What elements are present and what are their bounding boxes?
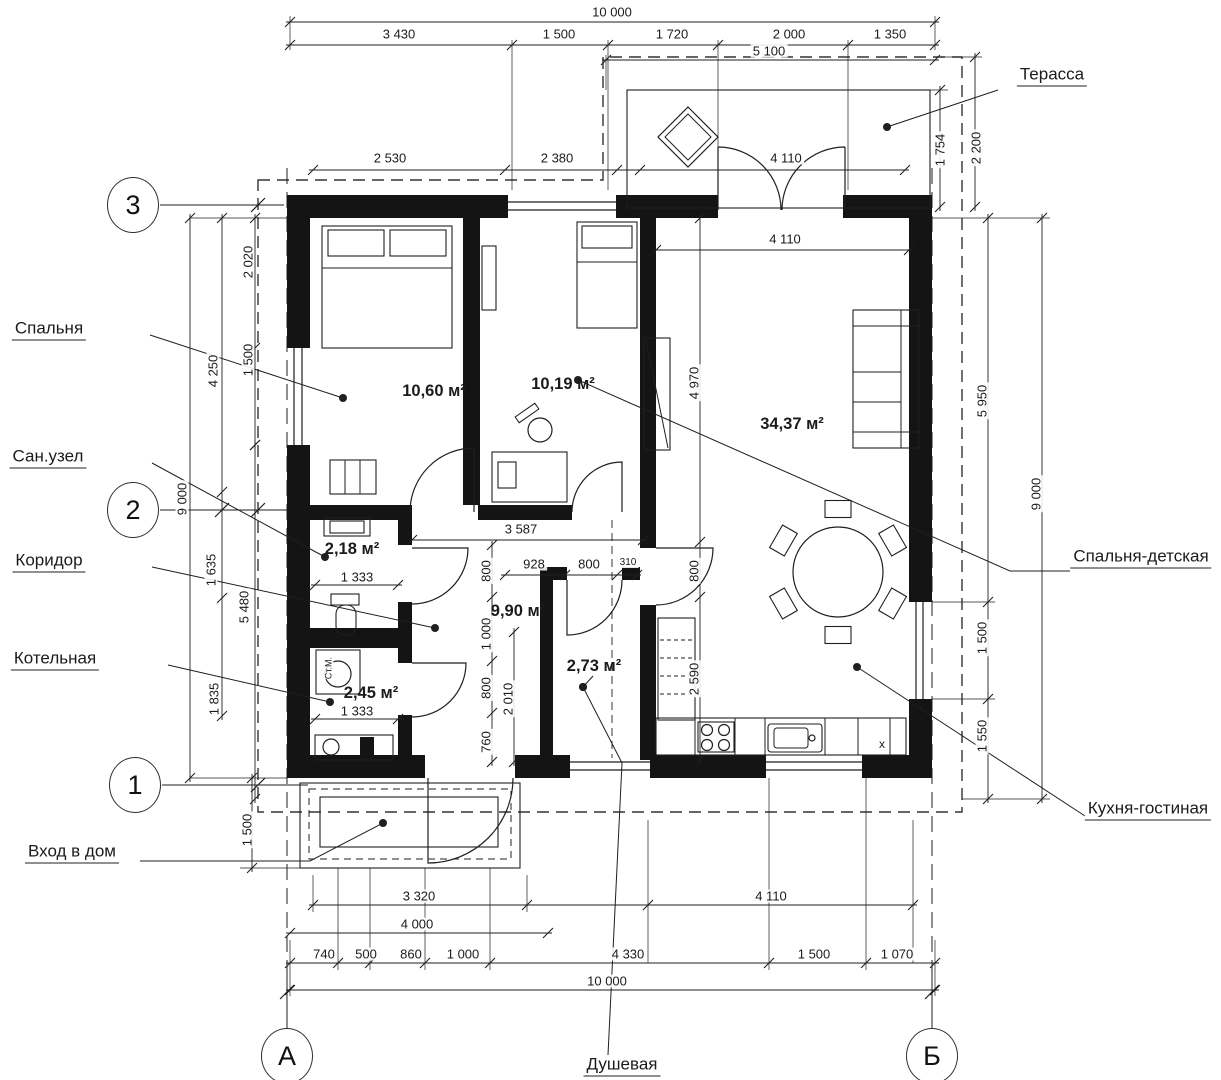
label-terrace: Терасса bbox=[1017, 66, 1087, 87]
room-area-kitchen-living: 34,37 м² bbox=[760, 416, 824, 433]
dim-1-000: 1 000 bbox=[445, 948, 482, 961]
dim-5-100: 5 100 bbox=[751, 45, 788, 58]
dim-1-835: 1 835 bbox=[208, 681, 221, 718]
room-area-boiler: 2,45 м² bbox=[344, 685, 398, 702]
label-corridor: Коридор bbox=[12, 552, 85, 573]
dim-860: 860 bbox=[398, 948, 424, 961]
label-bedroom-kids: Спальня-детская bbox=[1070, 548, 1211, 569]
room-area-corridor: 9,90 м² bbox=[491, 603, 545, 620]
label-entrance: Вход в дом bbox=[25, 843, 119, 864]
label-san-uzel: Сан.узел bbox=[10, 448, 87, 469]
dim-4-970: 4 970 bbox=[688, 365, 701, 402]
dim-5-950: 5 950 bbox=[976, 383, 989, 420]
dim-1-000: 1 000 bbox=[480, 616, 493, 653]
axis-2: 2 bbox=[107, 482, 159, 538]
dim-10-000: 10 000 bbox=[585, 975, 629, 988]
dim-2-200: 2 200 bbox=[970, 130, 983, 167]
dim-4-110: 4 110 bbox=[768, 152, 804, 165]
dim-500: 500 bbox=[353, 948, 379, 961]
text-labels-layer: 10 0003 4301 5001 7202 0001 3505 1002 53… bbox=[0, 0, 1221, 1080]
dim-1-754: 1 754 bbox=[934, 132, 947, 169]
dim-800: 800 bbox=[576, 558, 602, 571]
axis-1: 1 bbox=[109, 757, 161, 813]
floor-plan-canvas: 10 0003 4301 5001 7202 0001 3505 1002 53… bbox=[0, 0, 1221, 1080]
room-area-bedroom: 10,60 м² bbox=[402, 383, 466, 400]
dim-1-333: 1 333 bbox=[339, 705, 376, 718]
dim-4-110: 4 110 bbox=[767, 233, 803, 246]
dim-10-000: 10 000 bbox=[590, 6, 634, 19]
label-kitchen-living: Кухня-гостиная bbox=[1085, 800, 1211, 821]
dim-928: 928 bbox=[521, 558, 547, 571]
dim-800: 800 bbox=[688, 558, 701, 584]
axis-a: А bbox=[261, 1028, 313, 1080]
label-shower: Душевая bbox=[584, 1056, 661, 1077]
dim-2-590: 2 590 bbox=[688, 661, 701, 698]
dim-1-500: 1 500 bbox=[796, 948, 833, 961]
label-boiler-room: Котельная bbox=[11, 650, 99, 671]
dim-1-500: 1 500 bbox=[241, 812, 254, 849]
dim-1-333: 1 333 bbox=[339, 571, 376, 584]
axis-3: 3 bbox=[107, 177, 159, 233]
cooker-hood-symbol: x bbox=[879, 738, 885, 750]
dim-4-110: 4 110 bbox=[753, 890, 789, 903]
dim-4-000: 4 000 bbox=[399, 918, 436, 931]
dim-1-500: 1 500 bbox=[976, 620, 989, 657]
dim-2-010: 2 010 bbox=[502, 681, 515, 718]
dim-2-020: 2 020 bbox=[242, 244, 255, 281]
room-area-san-uzel: 2,18 м² bbox=[325, 541, 379, 558]
dim-2-000: 2 000 bbox=[771, 28, 808, 41]
dim-2-380: 2 380 bbox=[539, 152, 576, 165]
dim-4-330: 4 330 bbox=[610, 948, 647, 961]
dim-2-530: 2 530 bbox=[372, 152, 409, 165]
label-bedroom: Спальня bbox=[12, 320, 86, 341]
dim-800: 800 bbox=[480, 675, 493, 701]
dim-1-070: 1 070 bbox=[879, 948, 916, 961]
dim-9-000: 9 000 bbox=[176, 481, 189, 518]
room-area-bedroom-kids: 10,19 м² bbox=[531, 376, 595, 393]
dim-1-500: 1 500 bbox=[242, 342, 255, 379]
dim-1-500: 1 500 bbox=[541, 28, 578, 41]
dim-1-350: 1 350 bbox=[872, 28, 909, 41]
dim-3-430: 3 430 bbox=[381, 28, 418, 41]
dim-9-000: 9 000 bbox=[1030, 476, 1043, 513]
axis-b: Б bbox=[906, 1028, 958, 1080]
dim-3-320: 3 320 bbox=[401, 890, 438, 903]
washing-machine-label: Ст.М. bbox=[325, 657, 334, 679]
dim-760: 760 bbox=[480, 729, 493, 755]
dim-5-480: 5 480 bbox=[238, 589, 251, 626]
dim-3-587: 3 587 bbox=[503, 523, 540, 536]
dim-800: 800 bbox=[480, 558, 493, 584]
dim-310: 310 bbox=[618, 558, 639, 568]
dim-1-635: 1 635 bbox=[205, 552, 218, 589]
dim-1-720: 1 720 bbox=[654, 28, 691, 41]
dim-4-250: 4 250 bbox=[207, 353, 220, 390]
dim-740: 740 bbox=[311, 948, 337, 961]
room-area-shower: 2,73 м² bbox=[567, 658, 621, 675]
dim-1-550: 1 550 bbox=[976, 718, 989, 755]
